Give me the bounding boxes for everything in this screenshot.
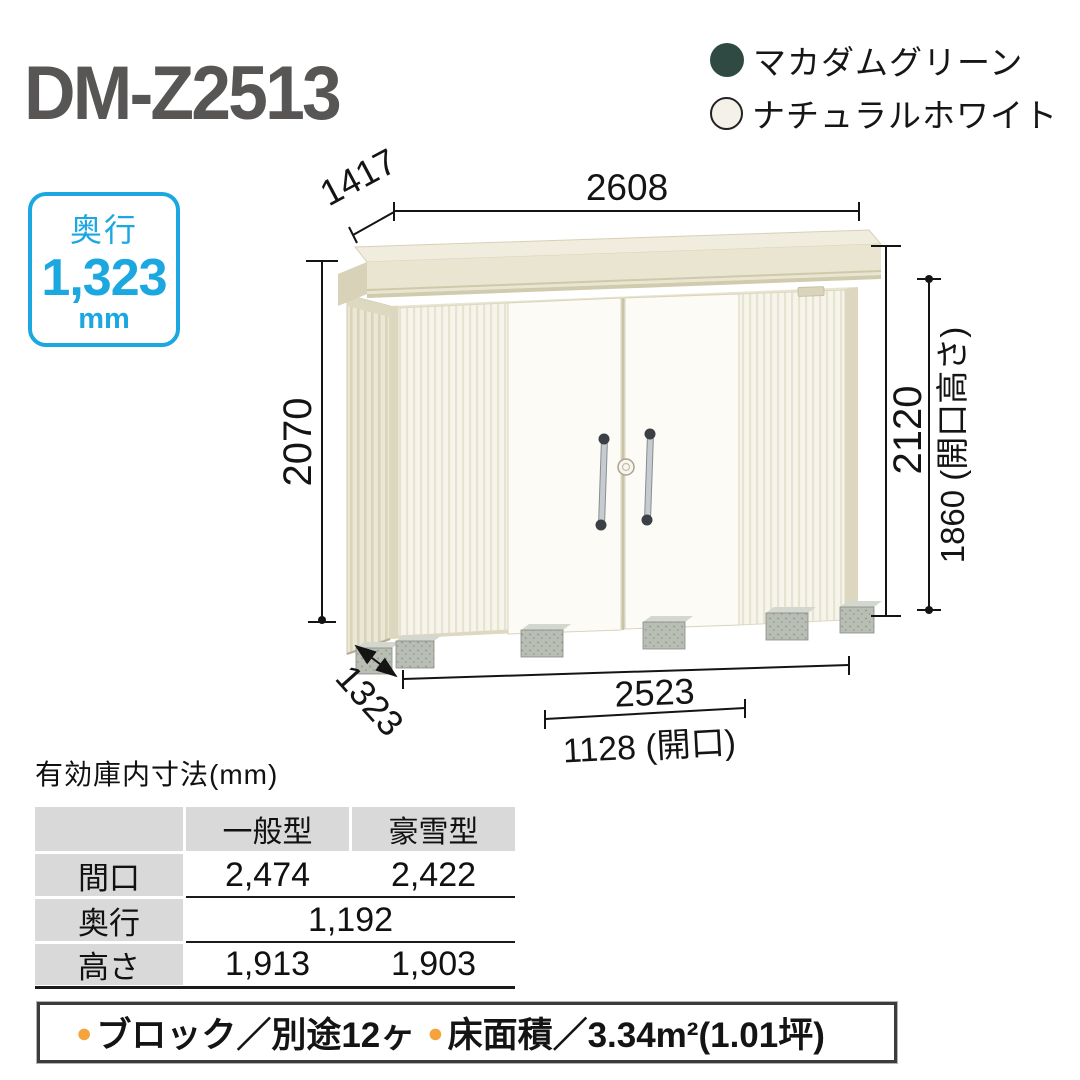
shed-corner-trim-right bbox=[845, 287, 858, 620]
spec-row-label: 間口 bbox=[35, 854, 183, 896]
handle-cap bbox=[642, 515, 653, 526]
footer-text: ブロック／別途12ヶ bbox=[96, 1007, 415, 1058]
spec-value: 1,913 bbox=[186, 944, 349, 985]
footer-item-blocks: ● ブロック／別途12ヶ bbox=[76, 1007, 415, 1058]
shed-door-right bbox=[625, 294, 739, 629]
table-bottom-border bbox=[35, 986, 515, 989]
spec-row-label: 高さ bbox=[35, 944, 183, 985]
dim-base-depth-label: 1323 bbox=[328, 657, 412, 744]
spec-row-label: 奥行 bbox=[35, 899, 183, 941]
spec-table-title: 有効庫内寸法(mm) bbox=[35, 753, 515, 793]
handle-cap bbox=[599, 434, 610, 445]
handle-cap bbox=[596, 520, 607, 531]
shed-fixed-panel-left bbox=[398, 303, 508, 636]
spec-value: 2,422 bbox=[352, 854, 515, 896]
spec-table: 一般型 豪雪型 間口 2,474 2,422 奥行 1,192 高さ 1,913… bbox=[35, 807, 515, 989]
shed-drawing bbox=[338, 230, 882, 674]
dim-opening-width-label: 1128 (開口) bbox=[562, 724, 737, 771]
dim-top-width-label: 2608 bbox=[586, 167, 668, 208]
row-divider bbox=[186, 941, 515, 943]
bullet-icon: ● bbox=[76, 1020, 92, 1047]
spec-sheet-page: DM-Z2513 マカダムグリーン ナチュラルホワイト 奥行 1,323 mm bbox=[0, 0, 1080, 1080]
row-divider bbox=[186, 896, 515, 898]
shed-side-wall bbox=[347, 295, 390, 654]
shed-fixed-panel-right bbox=[739, 290, 845, 625]
spec-value-merged: 1,192 bbox=[186, 899, 515, 941]
door-latch bbox=[618, 459, 634, 475]
dim-wall-height-label: 2070 bbox=[276, 398, 320, 487]
dim-roof-depth bbox=[349, 212, 394, 243]
footer-item-floor-area: ● 床面積／3.34m²(1.01坪) bbox=[427, 1007, 825, 1058]
dim-base-width-label: 2523 bbox=[614, 670, 696, 714]
spec-value: 2,474 bbox=[186, 854, 349, 896]
dim-roof-depth-label: 1417 bbox=[313, 140, 403, 214]
shed-corner-trim-left bbox=[390, 306, 398, 639]
footer-notes-bar: ● ブロック／別途12ヶ ● 床面積／3.34m²(1.01坪) bbox=[37, 1002, 897, 1063]
block bbox=[396, 635, 442, 668]
spec-header-heavy-snow: 豪雪型 bbox=[352, 807, 515, 851]
handle-cap bbox=[645, 429, 656, 440]
internal-dimensions-section: 有効庫内寸法(mm) 一般型 豪雪型 間口 2,474 2,422 奥行 1,1… bbox=[35, 753, 515, 989]
brand-plate bbox=[798, 287, 824, 297]
block bbox=[766, 607, 816, 640]
spec-value: 1,903 bbox=[352, 944, 515, 985]
spec-header-blank bbox=[35, 807, 183, 851]
dim-opening-height-label: 1860 (開口高さ) bbox=[934, 327, 971, 564]
bullet-icon: ● bbox=[427, 1020, 443, 1047]
block bbox=[521, 624, 571, 657]
block bbox=[643, 616, 693, 649]
spec-header-general: 一般型 bbox=[186, 807, 349, 851]
dim-total-height-label: 2120 bbox=[886, 386, 930, 475]
footer-text: 床面積／3.34m²(1.01坪) bbox=[448, 1007, 825, 1058]
